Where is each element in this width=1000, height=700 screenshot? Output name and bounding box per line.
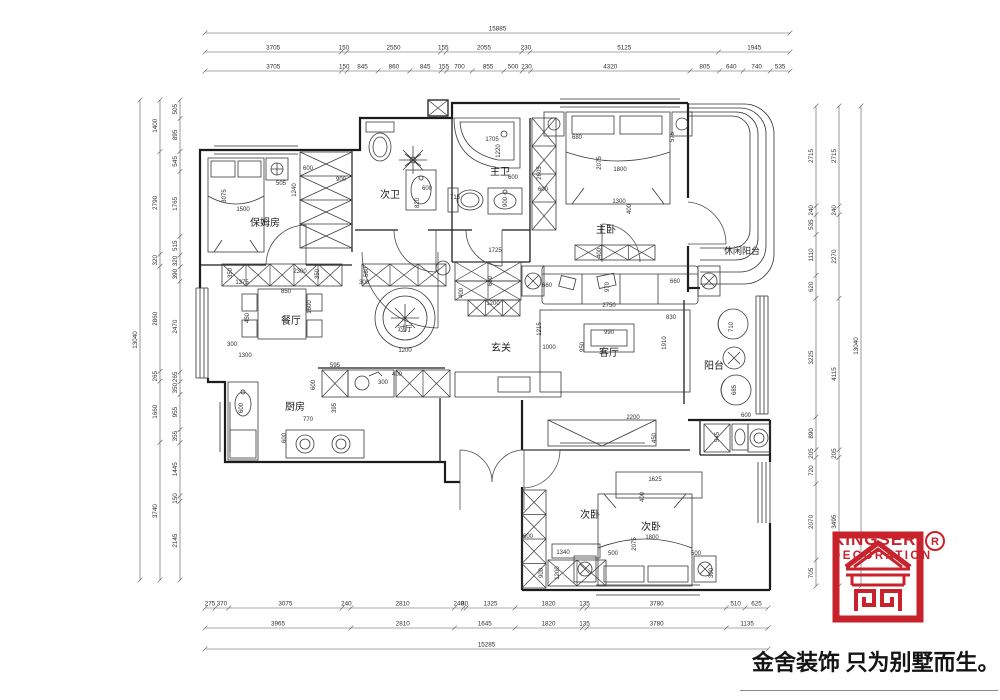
- dim-text: 13040: [853, 337, 860, 355]
- drawing-sheet: 1588537051502550155205523051251945370515…: [0, 0, 1000, 700]
- balcony-window: [756, 296, 768, 414]
- inline-dim-text: 600: [741, 413, 752, 419]
- cabinet-hatch: [396, 370, 450, 397]
- inline-dim-text: 1240: [292, 183, 298, 197]
- walls: [200, 100, 770, 590]
- kitchen-sink-counter: [228, 382, 258, 460]
- inline-dim-text: 600: [488, 275, 494, 286]
- dim-text: 805: [699, 64, 710, 71]
- inline-dim-text: 950: [580, 341, 586, 352]
- dim-text: 155: [438, 64, 449, 71]
- dim-text: 205: [808, 448, 815, 459]
- inline-dim-text: 500: [691, 551, 702, 557]
- entry-door-left: [460, 450, 492, 482]
- inline-dim-text: 1200: [398, 348, 412, 354]
- inline-dim-text: 400: [640, 491, 646, 502]
- bathtub: [454, 118, 520, 168]
- dimension-line: [203, 50, 793, 55]
- inline-dim-text: 600: [239, 402, 245, 413]
- dim-text: 2145: [172, 533, 179, 548]
- inline-dim-text: 560: [364, 266, 370, 277]
- inline-dim-text: 900: [503, 196, 509, 207]
- inline-dim-text: 680: [572, 135, 583, 141]
- room-label: 次卧: [641, 520, 661, 533]
- inline-dim-text: 400: [597, 247, 603, 258]
- dim-text: 500: [508, 64, 519, 71]
- inline-dim-text: 500: [608, 551, 619, 557]
- inline-dim-text: 1220: [496, 144, 502, 158]
- dim-text: 3075: [278, 601, 293, 608]
- dim-text: 15285: [478, 642, 496, 649]
- inline-dim-text: 770: [303, 417, 314, 423]
- kitchen-stove: [286, 430, 364, 458]
- dim-text: 5125: [617, 45, 632, 52]
- dim-text: 2070: [808, 514, 815, 529]
- room-label: 餐厅: [281, 314, 301, 327]
- inline-dim-text: 300: [709, 567, 715, 578]
- dim-text: 390: [172, 268, 179, 279]
- dim-text: 640: [726, 64, 737, 71]
- washing-machine: [748, 424, 770, 452]
- dim-text: 150: [339, 45, 350, 52]
- inline-dim-text: 2075: [632, 537, 638, 551]
- dim-text: 625: [751, 601, 762, 608]
- inline-dim-text: 1340: [556, 550, 570, 556]
- dim-text: 720: [808, 465, 815, 476]
- hall-rug: [375, 288, 435, 348]
- inline-dim-text: 575: [670, 131, 676, 142]
- dim-text: 135: [579, 621, 590, 628]
- dim-text: 2715: [831, 148, 838, 163]
- side-table-left: [522, 266, 544, 296]
- dimension-line: [178, 98, 183, 583]
- nightstand-left: [544, 112, 564, 136]
- dim-text: 2470: [172, 319, 179, 334]
- inline-dim-text: 820: [415, 197, 421, 208]
- room-label: 次卫: [380, 188, 400, 201]
- inline-dim-text: 3075: [222, 189, 228, 203]
- inline-dim-text: 395: [332, 402, 338, 413]
- inline-dim-text: 830: [666, 315, 677, 321]
- dim-text: 895: [172, 129, 179, 140]
- inline-dim-text: 1500: [236, 207, 250, 213]
- dim-text: 370: [217, 601, 228, 608]
- room-label: 次卧: [580, 508, 600, 521]
- dim-text: 1645: [478, 621, 493, 628]
- dim-text: 845: [357, 64, 368, 71]
- dim-text: 3965: [271, 621, 286, 628]
- inline-dim-text: 1800: [613, 167, 627, 173]
- dim-text: 515: [172, 240, 179, 251]
- dim-text: 155: [438, 45, 449, 52]
- dim-text: 3705: [266, 45, 281, 52]
- leisure-balcony-bay-window: [688, 104, 774, 284]
- second-bedroom-door: [522, 450, 560, 488]
- inline-dim-text: 600: [538, 187, 549, 193]
- inline-dim-text: 450: [652, 432, 658, 443]
- registered-mark: R: [931, 536, 939, 548]
- toilet-1: [366, 122, 394, 161]
- dim-text: 545: [172, 156, 179, 167]
- room-label: 主卧: [596, 223, 616, 236]
- inline-dim-text: 1375: [235, 280, 249, 286]
- room-label: 厨房: [285, 400, 305, 413]
- inline-dim-text: 300: [378, 380, 389, 386]
- inline-dim-text: 600: [311, 379, 317, 390]
- dim-text: 265: [152, 371, 159, 382]
- inline-dim-text: 1625: [648, 477, 662, 483]
- inline-dim-text: 970: [605, 281, 611, 292]
- hall-long-cabinet: [455, 372, 561, 397]
- inline-dim-text: 1000: [542, 345, 556, 351]
- inline-dim-text: 2200: [626, 415, 640, 421]
- dim-text: 13040: [132, 331, 139, 349]
- dim-text: 355: [172, 430, 179, 441]
- dim-text: 890: [808, 428, 815, 439]
- inline-dim-text: 600: [422, 186, 433, 192]
- logo-mark: R: [832, 527, 952, 623]
- inline-dim-text: 1300: [612, 199, 626, 205]
- room-label: 过厅: [398, 323, 413, 333]
- room-label: 玄关: [491, 341, 511, 354]
- dim-text: 3225: [808, 350, 815, 365]
- nanny-side-table: [266, 158, 288, 180]
- sofa: [542, 266, 698, 304]
- dim-text: 350: [172, 382, 179, 393]
- dim-text: 1400: [152, 118, 159, 133]
- dim-text: 1820: [542, 621, 557, 628]
- dim-text: 205: [831, 448, 838, 459]
- inline-dim-text: 2075: [597, 156, 603, 170]
- dim-text: 240: [831, 205, 838, 216]
- nanny-bed: [208, 158, 264, 252]
- inline-dim-text: 2300: [293, 269, 307, 275]
- dim-text: 3780: [650, 601, 665, 608]
- inline-dim-text: 990: [604, 330, 615, 336]
- dimension-layer: 1588537051502550155205523051251945370515…: [132, 26, 863, 652]
- leisure-balcony-door: [688, 202, 726, 244]
- master-bed: [566, 112, 670, 204]
- inline-dim-text: 600: [303, 166, 314, 172]
- bay-window-left: [196, 288, 208, 378]
- inline-dim-text: 400: [459, 287, 465, 298]
- dim-text: 230: [521, 64, 532, 71]
- dim-text: 1945: [747, 45, 762, 52]
- entry-door-right: [492, 450, 524, 482]
- dim-text: 320: [172, 255, 179, 266]
- side-table-right: [698, 266, 720, 296]
- dim-text: 535: [775, 64, 786, 71]
- dim-text: 1135: [740, 621, 754, 628]
- dim-text: 240: [341, 601, 352, 608]
- dim-text: 535: [808, 219, 815, 230]
- room-label: 休闲阳台: [724, 245, 760, 256]
- dim-text: 135: [579, 601, 590, 608]
- inline-dim-text: 1200: [486, 301, 500, 307]
- dim-text: 1820: [541, 601, 556, 608]
- dim-text: 620: [808, 281, 815, 292]
- inline-dim-text: 850: [281, 289, 292, 295]
- cabinet-hatch: [575, 245, 655, 260]
- dim-text: 1660: [152, 404, 159, 419]
- dim-text: 1445: [172, 462, 179, 477]
- dim-text: 2790: [152, 195, 159, 210]
- cabinet-hatch: [362, 264, 446, 286]
- dim-text: 700: [454, 64, 465, 71]
- inline-dim-text: 450: [245, 312, 251, 323]
- second-bedroom-window: [758, 462, 770, 523]
- title-block-rule: [740, 690, 998, 691]
- inline-dim-text: 400: [627, 203, 633, 214]
- second-bath-door: [394, 230, 436, 272]
- inline-dim-text: 1725: [488, 248, 502, 254]
- room-label: 客厅: [599, 346, 619, 359]
- dim-text: 2810: [396, 601, 411, 608]
- dim-text: 150: [339, 64, 350, 71]
- chandelier-1: [399, 146, 427, 174]
- dim-text: 955: [172, 406, 179, 417]
- inline-dim-text: 710: [729, 321, 735, 332]
- dim-text: 1325: [484, 601, 499, 608]
- dim-text: 320: [152, 254, 159, 265]
- dim-text: 4115: [831, 367, 838, 381]
- logo: R KINGSER' DECORATION: [832, 527, 1000, 562]
- dim-text: 705: [808, 567, 815, 578]
- dim-text: 510: [730, 601, 741, 608]
- inline-dim-text: 1800: [645, 535, 659, 541]
- inline-dimension-layer: 3075150050560090012406008207151705122060…: [222, 131, 752, 579]
- dim-text: 855: [483, 64, 494, 71]
- balcony-table: [723, 347, 745, 369]
- dim-text: 845: [420, 64, 431, 71]
- dim-text: 2550: [387, 45, 402, 52]
- dim-text: 740: [751, 64, 762, 71]
- inline-dim-text: 350: [228, 267, 234, 278]
- room-label: 主卫: [490, 166, 510, 178]
- dim-text: 2055: [477, 45, 492, 52]
- dim-text: 1765: [172, 196, 179, 211]
- inline-dim-text: 660: [542, 283, 553, 289]
- laundry-sink: [732, 424, 748, 450]
- inline-dim-text: 1600: [307, 300, 313, 314]
- dim-text: 240: [808, 205, 815, 216]
- inline-dim-text: 1705: [485, 137, 499, 143]
- inline-dim-text: 1910: [662, 336, 668, 350]
- dim-text: 3705: [266, 64, 281, 71]
- room-label: 阳台: [704, 359, 724, 372]
- cabinet-hatch: [322, 370, 348, 397]
- dim-text: 265: [172, 371, 179, 382]
- room-label: 保姆房: [250, 216, 280, 229]
- dim-text: 150: [172, 493, 179, 504]
- inline-dim-text: 1215: [537, 322, 543, 336]
- dim-text: 230: [521, 45, 532, 52]
- inline-dim-text: 685: [732, 384, 738, 395]
- dim-text: 3780: [650, 621, 665, 628]
- tagline: 金舍装饰 只为别墅而生。: [752, 645, 1000, 677]
- dim-text: 505: [172, 104, 179, 115]
- dim-text: 2270: [831, 249, 838, 264]
- inline-dim-text: 1300: [238, 353, 252, 359]
- inline-dim-text: 2605: [537, 166, 543, 180]
- inline-dim-text: 350: [315, 268, 321, 279]
- inline-dim-text: 900: [539, 567, 545, 578]
- inline-dim-text: 595: [330, 363, 341, 369]
- dim-text: 275: [205, 601, 216, 608]
- dim-text: 2860: [152, 311, 159, 326]
- inline-dim-text: 300: [227, 342, 238, 348]
- inline-dim-text: 900: [336, 177, 347, 183]
- inline-dim-text: 715: [450, 195, 461, 201]
- dim-text: 15885: [489, 26, 507, 33]
- inline-dim-text: 545: [715, 431, 721, 442]
- inline-dim-text: 600: [523, 534, 534, 540]
- living-tv-cabinet: [548, 420, 656, 446]
- inline-dim-text: 2750: [602, 303, 616, 309]
- dim-text: 4320: [603, 64, 618, 71]
- inline-dim-text: 600: [282, 432, 288, 443]
- dim-text: 860: [389, 64, 400, 71]
- inline-dim-text: 400: [392, 372, 403, 378]
- dim-text: 80: [461, 601, 469, 608]
- dim-text: 2715: [808, 148, 815, 163]
- inline-dim-text: 1200: [555, 566, 561, 580]
- inline-dim-text: 660: [670, 279, 681, 285]
- dim-text: 3740: [152, 504, 159, 519]
- inline-dim-text: 300: [359, 280, 370, 286]
- dim-text: 2810: [396, 621, 411, 628]
- dim-text: 1110: [808, 248, 815, 262]
- inline-dim-text: 505: [276, 181, 287, 187]
